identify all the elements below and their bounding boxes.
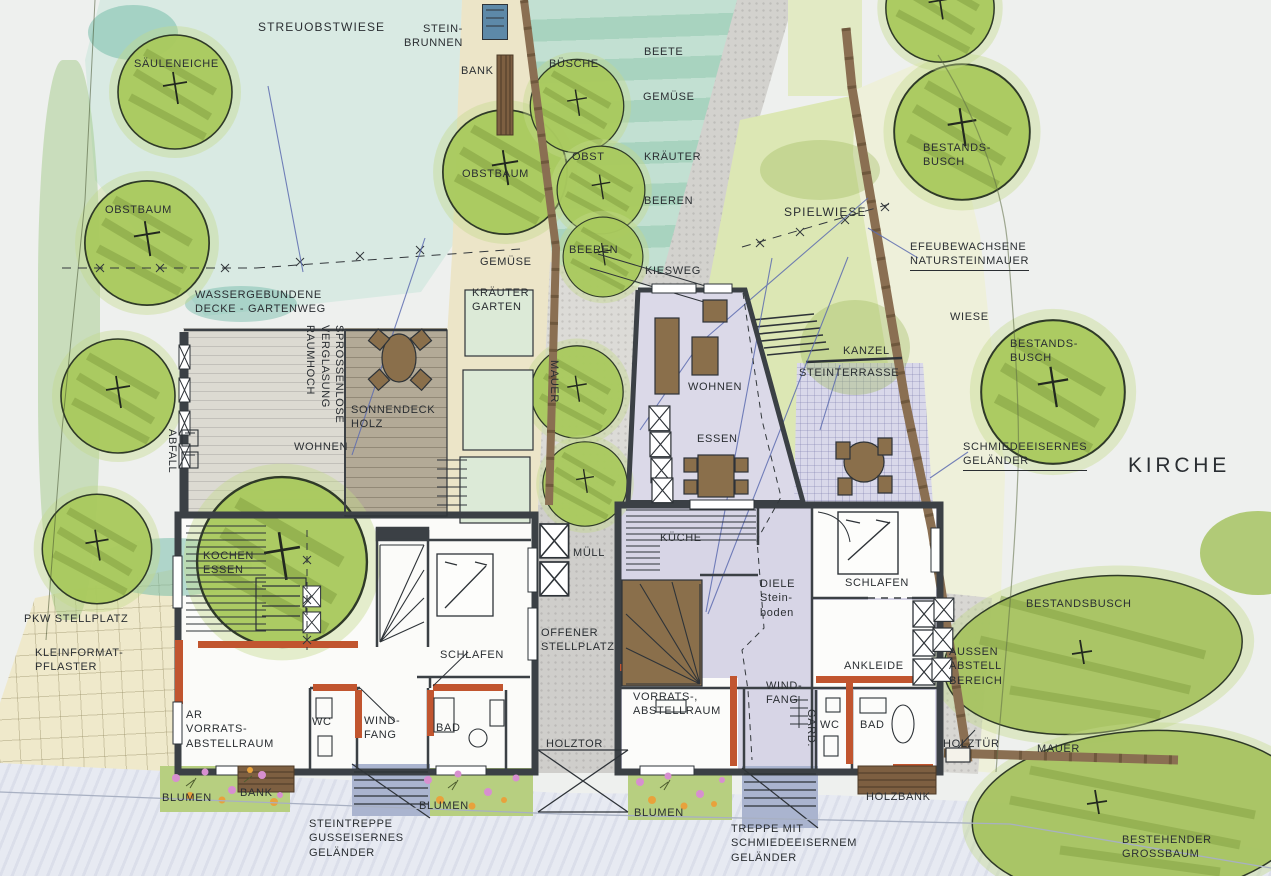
raised-beds: [460, 290, 533, 523]
label-schlafen-right: SCHLAFEN: [845, 576, 909, 590]
label-holztor: HOLZTOR: [546, 737, 603, 751]
label-kleinformatpflaster: KLEINFORMAT- PFLASTER: [35, 646, 123, 675]
label-obstbaum-left: OBSTBAUM: [105, 203, 172, 217]
sonnendeck-table-icon: [368, 329, 431, 390]
label-blumen-east: BLUMEN: [634, 806, 684, 820]
label-wohnen-left: WOHNEN: [294, 440, 348, 454]
label-diele: DIELE Stein- boden: [760, 577, 795, 620]
label-bestandsbusch-nord: BESTANDS- BUSCH: [923, 141, 991, 170]
label-kochen-essen: KOCHEN ESSEN: [203, 549, 254, 578]
label-kraeutergarten: KRÄUTER GARTEN: [472, 286, 529, 315]
fountain-detail: [486, 10, 504, 26]
label-mauer-bottom: MAUER: [1037, 742, 1080, 756]
label-wohnen-right: WOHNEN: [688, 380, 742, 394]
label-offener-stellplatz: OFFENER STELLPLATZ: [541, 626, 615, 655]
label-spielwiese: SPIELWIESE: [784, 205, 867, 221]
label-beeren-upper: BEEREN: [644, 194, 693, 208]
label-bank-bottom: BANK: [240, 786, 273, 800]
label-muell: MÜLL: [573, 546, 605, 560]
label-buesche: BÜSCHE: [549, 57, 599, 71]
label-treppe: TREPPE MIT SCHMIEDEEISERNEM GELÄNDER: [731, 822, 857, 865]
label-obst: OBST: [572, 150, 605, 164]
label-ankleide: ANKLEIDE: [844, 659, 904, 673]
bed-icon: [437, 554, 493, 616]
label-mauer-garden: MAUER: [547, 360, 561, 403]
label-saeuleneiche: SÄULENEICHE: [134, 57, 219, 71]
site-plan: STREUOBSTWIESE SÄULENEICHE STEIN- BRUNNE…: [0, 0, 1271, 876]
label-gemuese-lower: GEMÜSE: [480, 255, 532, 269]
label-steinterrasse: STEINTERRASSE: [799, 366, 899, 380]
label-vorratsraum-right: VORRATS-, ABSTELLRAUM: [633, 690, 721, 719]
label-bad-left: BAD: [436, 721, 461, 735]
label-obstbaum-center: OBSTBAUM: [462, 167, 529, 181]
label-kueche: KÜCHE: [660, 531, 702, 545]
label-schlafen-left: SCHLAFEN: [440, 648, 504, 662]
label-holzbank: HOLZBANK: [866, 790, 931, 804]
terrace-table-icon: [836, 438, 892, 495]
stairs-icon: [622, 580, 702, 686]
label-essen-right: ESSEN: [697, 432, 738, 446]
label-kanzel: KANZEL: [843, 344, 890, 358]
label-bad-right: BAD: [860, 718, 885, 732]
label-abfall: ABFALL: [165, 429, 179, 473]
label-holztuer: HOLZTÜR: [943, 737, 1000, 751]
label-bestandsbusch-sued: BESTANDSBUSCH: [1026, 597, 1132, 611]
holztor-gate-icon: [538, 750, 628, 812]
label-wc-right: WC: [820, 718, 840, 732]
label-kiesweg: KIESWEG: [645, 264, 701, 278]
label-bestandsbusch-mitte: BESTANDS- BUSCH: [1010, 337, 1078, 366]
stairs-icon: [380, 545, 424, 642]
label-gard: GARD.: [804, 709, 818, 747]
sanitary-fixtures: [316, 698, 504, 756]
label-pkw-stellplatz: PKW STELLPLATZ: [24, 612, 128, 626]
label-beeren-lower: BEEREN: [569, 243, 618, 257]
label-wiese: WIESE: [950, 310, 989, 324]
label-wc-left: WC: [312, 715, 332, 729]
label-grossbaum: BESTEHENDER GROSSBAUM: [1122, 833, 1212, 862]
dining-table-icon: [684, 455, 748, 497]
bush-area-southeast: [921, 511, 1271, 876]
label-steintreppe: STEINTREPPE GUSSEISERNES GELÄNDER: [309, 817, 404, 860]
label-blumen-mid: BLUMEN: [419, 799, 469, 813]
bed-icon: [838, 512, 898, 574]
label-windfang-right: WIND- FANG: [766, 679, 802, 708]
label-wassergebundene: WASSERGEBUNDENE DECKE - GARTENWEG: [195, 288, 326, 317]
label-schmiede: SCHMIEDEEISERNES GELÄNDER: [963, 440, 1087, 471]
label-blumen-west: BLUMEN: [162, 791, 212, 805]
label-abstellraum-left: AR VORRATS- ABSTELLRAUM: [186, 708, 274, 751]
label-streuobstwiese: STREUOBSTWIESE: [258, 20, 385, 36]
label-efeumauer: EFEUBEWACHSENE NATURSTEINMAUER: [910, 240, 1029, 271]
label-bank-top: BANK: [461, 64, 494, 78]
label-beete: BEETE: [644, 45, 683, 59]
label-windfang-left: WIND- FANG: [364, 714, 400, 743]
muell-bins: [540, 524, 569, 596]
label-aussen-abstell: AUSSEN ABSTELL BEREICH: [949, 645, 1003, 688]
label-gemuese-upper: GEMÜSE: [643, 90, 695, 104]
label-kirche: KIRCHE: [1128, 452, 1230, 479]
label-sonnendeck: SONNENDECK HOLZ: [351, 403, 435, 432]
label-kraeuter: KRÄUTER: [644, 150, 701, 164]
label-steinbrunnen: STEIN- BRUNNEN: [404, 22, 463, 51]
label-sprossenlose: SPROSSENLOSE VERGLASUNG RAUMHOCH: [303, 325, 346, 423]
